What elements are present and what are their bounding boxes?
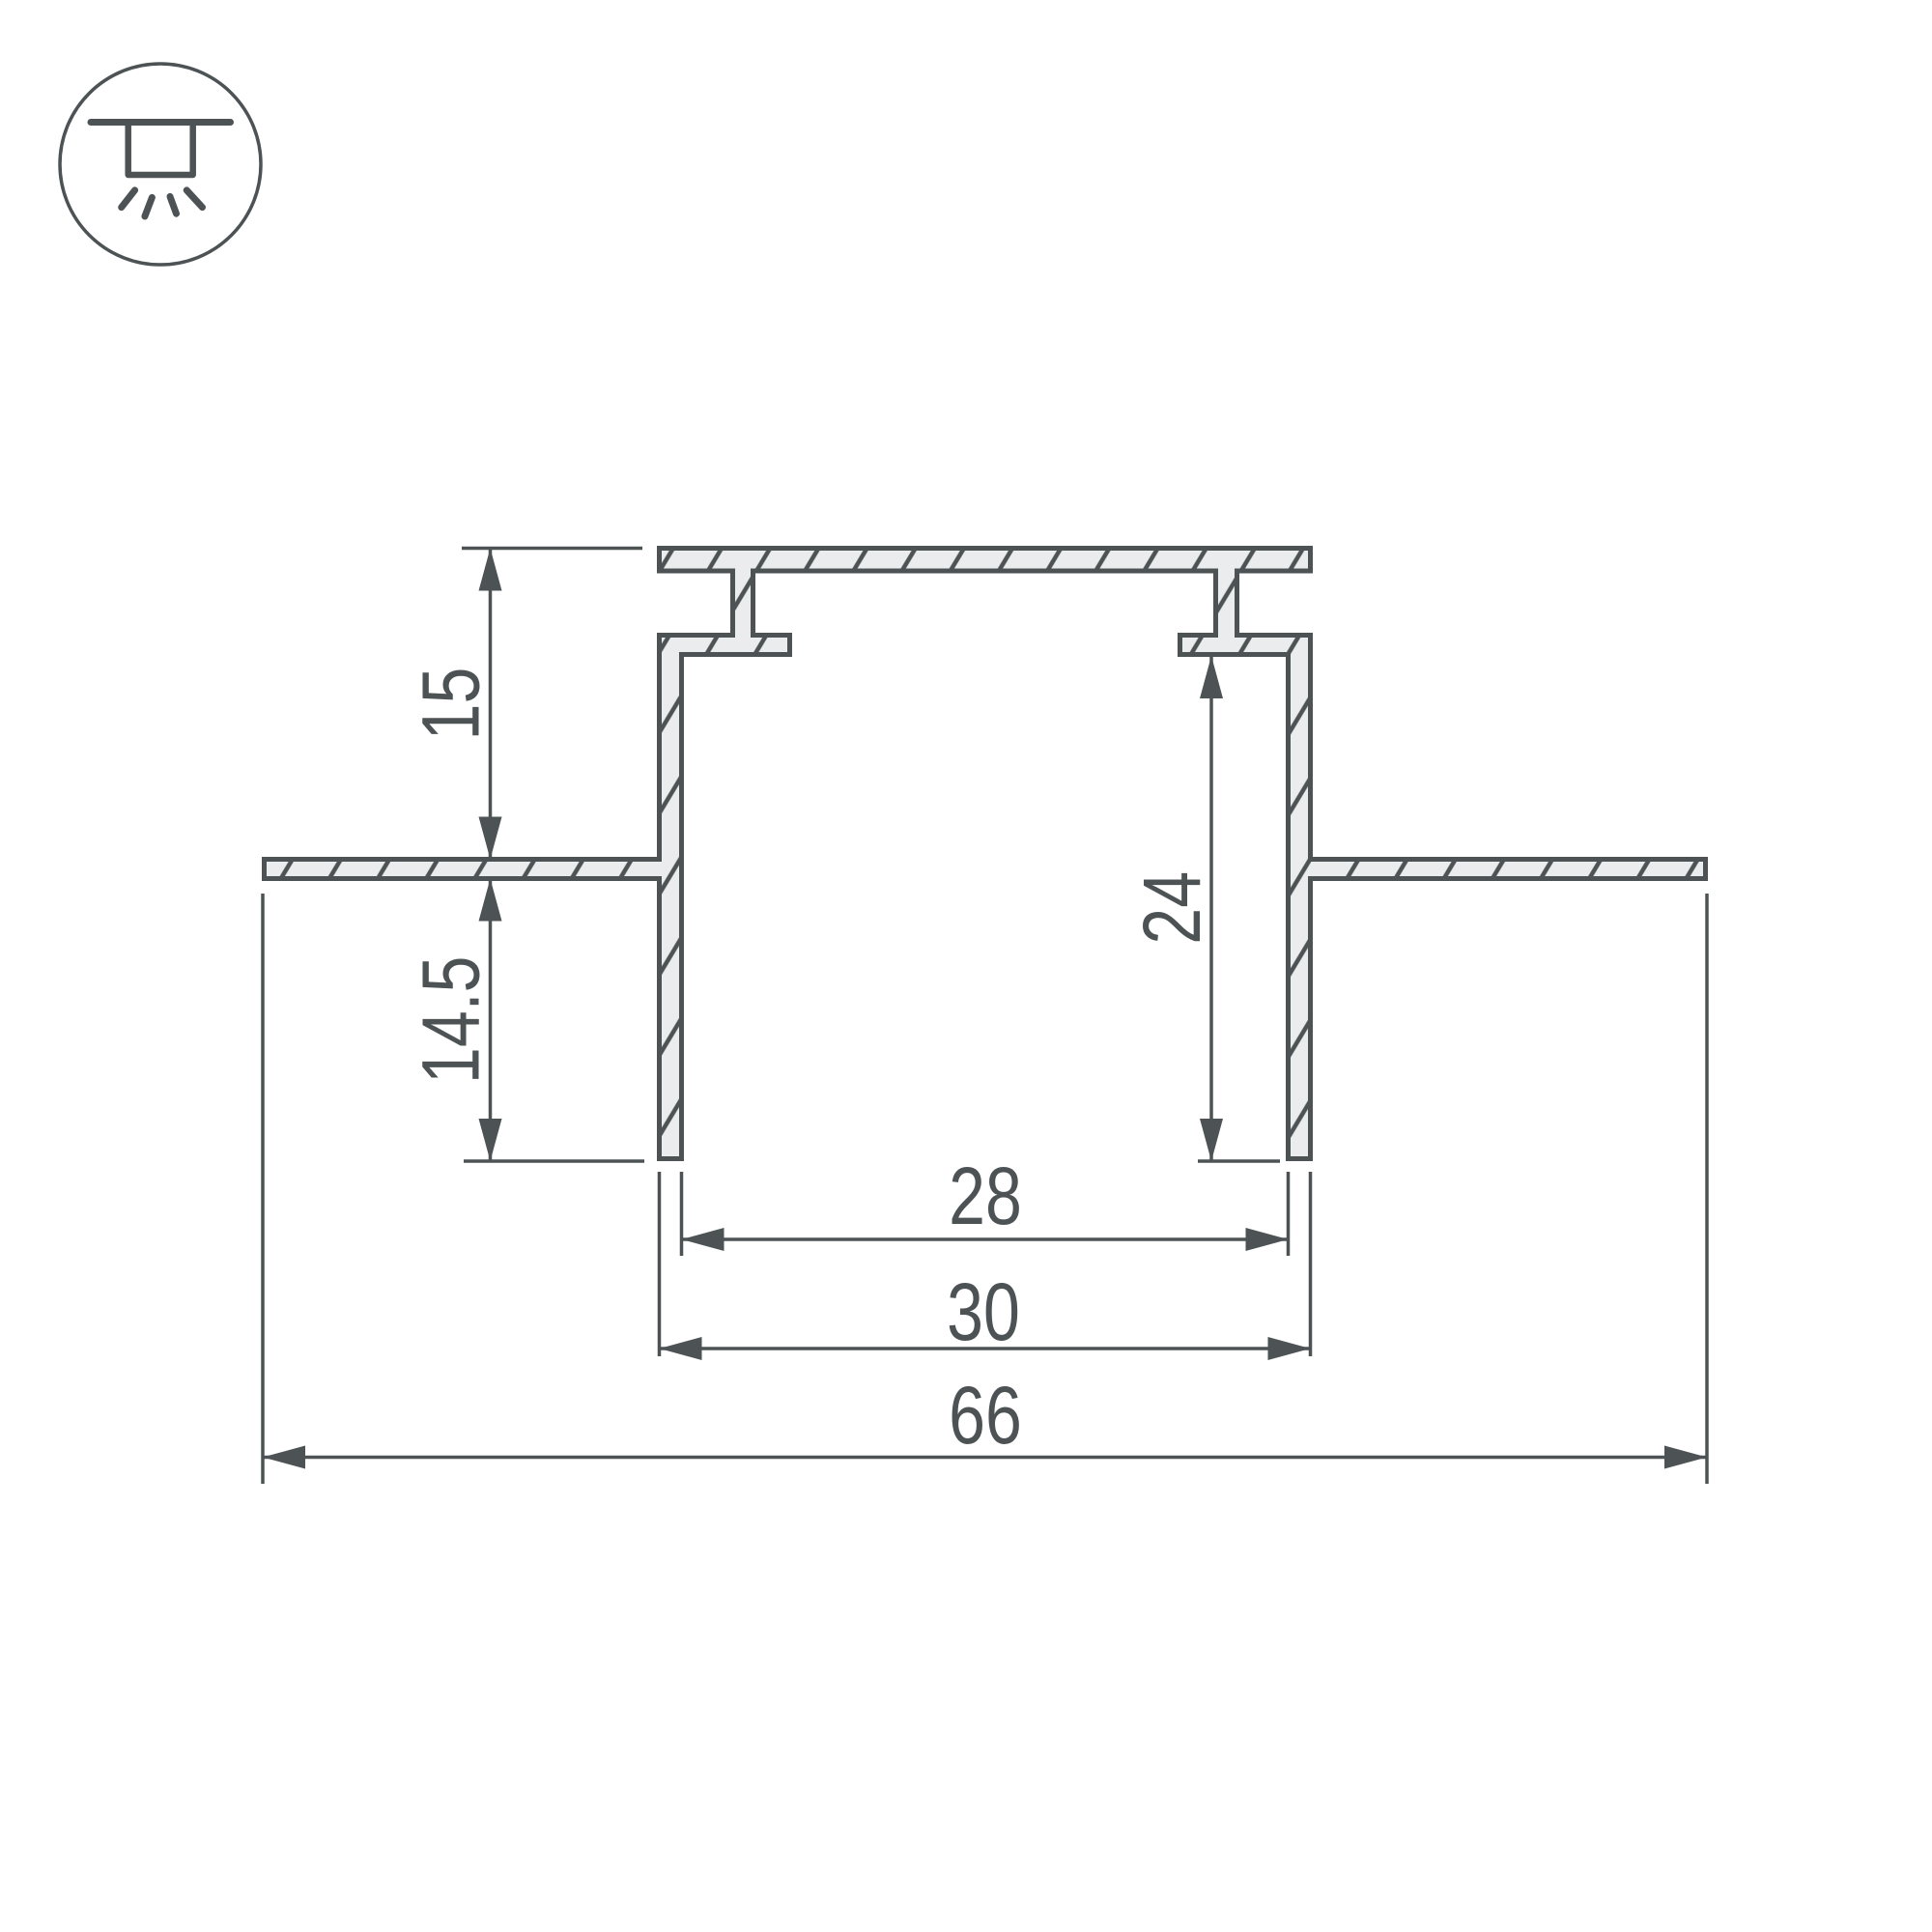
svg-text:28: 28 [949, 1151, 1022, 1241]
svg-text:66: 66 [949, 1371, 1022, 1461]
svg-text:30: 30 [947, 1267, 1020, 1357]
svg-text:14.5: 14.5 [407, 956, 497, 1084]
svg-text:15: 15 [407, 668, 497, 741]
svg-text:24: 24 [1127, 871, 1217, 945]
